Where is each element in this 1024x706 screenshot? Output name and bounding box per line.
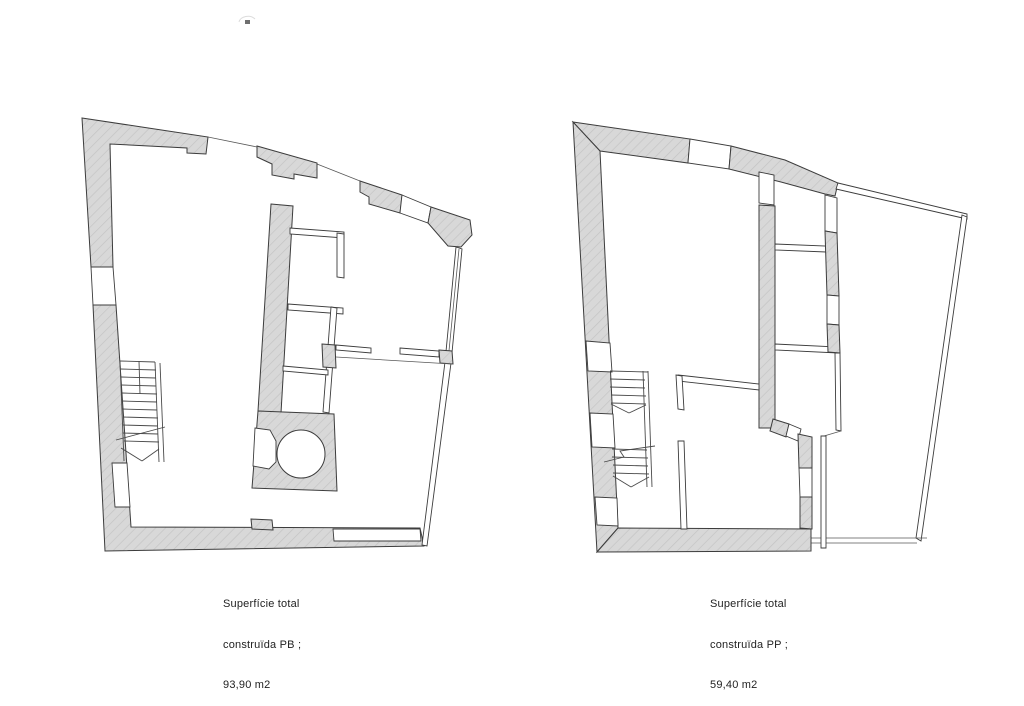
pb-pillar: [322, 344, 336, 368]
pb-floor-line: [336, 357, 452, 364]
pb-parcel-line-right: [317, 164, 360, 181]
pp-terrace-parapet-top: [836, 183, 967, 219]
plan-pp-drawing: [573, 122, 967, 552]
pp-caption-line2: construïda PP ;: [710, 639, 788, 653]
pp-top-window: [688, 139, 731, 169]
pb-bottom-opening: [333, 529, 421, 541]
pp-thin-face-lower: [821, 436, 826, 548]
pb-topright-wall-a: [360, 181, 402, 213]
pp-wall2-window-b: [827, 295, 839, 325]
pb-partition-3h: [283, 366, 328, 375]
pb-caption: Superfície total construïda PB ; 93,90 m…: [223, 571, 301, 706]
pb-right-glazing-line: [448, 249, 459, 361]
pb-partition-1h: [290, 228, 344, 238]
pb-bottom-notch: [251, 519, 273, 530]
pp-caption: Superfície total construïda PP ; 59,40 m…: [710, 571, 788, 706]
pb-topright-wall-b: [428, 207, 472, 247]
pp-thin-face-upper: [835, 353, 841, 431]
pb-topmiddle-wall: [257, 146, 317, 179]
pb-shower-trapezoid: [253, 428, 276, 469]
pb-stub-right: [400, 348, 439, 357]
pp-top-wall-b: [729, 146, 838, 196]
pp-wall2-a: [825, 231, 839, 296]
pb-topright-window: [400, 195, 431, 223]
pb-caption-line2: construïda PB ;: [223, 639, 301, 653]
pp-caption-line1: Superfície total: [710, 598, 788, 612]
pb-left-window: [91, 267, 116, 305]
pb-partition-1v: [337, 233, 344, 278]
plan-pb-drawing: [82, 118, 472, 551]
pp-wall1-window: [759, 172, 774, 205]
pp-wall2b-a: [798, 434, 812, 468]
pp-left-window-2: [590, 413, 615, 448]
pp-lwall-h: [678, 375, 759, 390]
pp-caption-line3: 59,40 m2: [710, 679, 788, 693]
pb-caption-line1: Superfície total: [223, 598, 301, 612]
pp-left-wall: [573, 122, 618, 552]
pp-lower-stub: [678, 441, 687, 529]
floor-plans-drawing: [0, 0, 1024, 696]
pp-wall2-window-a: [825, 195, 837, 233]
pp-bottom-wall: [597, 528, 811, 552]
pp-wall2b-b: [800, 497, 812, 529]
pb-round-stair: [277, 430, 325, 478]
pp-face-jog-line: [824, 431, 841, 436]
pb-door-leaf: [112, 463, 130, 507]
pp-wall2b-window: [799, 468, 812, 497]
pb-caption-line3: 93,90 m2: [223, 679, 301, 693]
pp-left-window-3: [595, 497, 618, 526]
pb-topleft-wall: [82, 118, 208, 267]
pp-wall1: [759, 205, 775, 428]
pb-stub-left: [336, 345, 371, 353]
pp-left-window-1: [586, 341, 612, 372]
pb-stub-right-block: [439, 350, 453, 364]
stray-mark: [239, 16, 255, 24]
pp-partition-upper: [775, 244, 826, 252]
pb-right-edge-wall: [422, 362, 451, 546]
pp-wall2-b: [827, 324, 840, 353]
pp-terrace-parapet-right: [916, 215, 967, 541]
pb-parcel-line-left: [208, 137, 257, 147]
